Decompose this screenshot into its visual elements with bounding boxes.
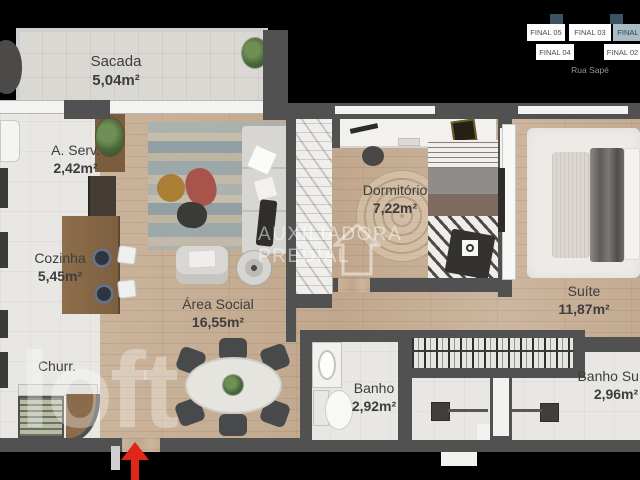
stool [94,284,114,304]
locator-unit-final04: FINAL 04 [536,44,574,60]
room-label-suite: Suíte 11,87m² [538,283,630,319]
sink-basin [318,350,336,380]
window-sill [108,100,266,114]
bed-knit-blanket [552,152,590,258]
wall-stub [332,112,340,148]
appliance [0,310,8,338]
bed-dark-duvet [590,148,624,262]
laundry-sink [0,120,20,162]
brand-watermark-line2: PREDIAL [258,246,350,268]
locator-unit-final05: FINAL 05 [527,24,565,41]
floor-plan-image: Sacada 5,04m² A. Serv. 2,42m² Cozinha 5,… [0,0,640,480]
room-label-sacada: Sacada 5,04m² [70,52,162,90]
double-bed [552,148,640,262]
wall [296,294,332,308]
fixture [0,352,8,388]
pouf-mustard [157,174,185,202]
bed-pillow-band [428,140,498,168]
locator-balcony-marker [550,14,563,24]
brand-watermark-line1: AUXILIADORA [258,224,402,246]
wall-suite-bottom [575,337,640,352]
table-centerpiece [223,375,243,395]
closet-hangers [412,338,575,368]
room-label-cozinha: Cozinha 5,45m² [6,250,114,286]
hallway-stub [441,452,477,466]
wall-pier [64,100,110,119]
locator-unit-final02: FINAL 02 [604,44,640,60]
chair [117,245,137,265]
kitchen-cabinet [88,176,116,220]
room-label-banho-suite: Banho Suíte 2,96m² [576,368,640,404]
wall-bottom [160,438,300,452]
bed-logo-mark [466,244,474,252]
wall-bottom [300,440,398,452]
bedroom-door-opening [338,278,370,292]
appliance [0,168,8,208]
wall-bath-left [300,342,312,442]
balcony-railing [16,28,268,32]
entrance-arrow-icon [121,442,149,460]
armchair-cushion [188,249,217,268]
bed-pillows [624,148,640,260]
shower-fixture [540,403,559,422]
locator-balcony-marker [610,14,623,24]
bedroom-window [335,106,435,114]
room-label-dormitorio: Dormitório 7,22m² [336,182,454,218]
dining-chair [219,414,247,436]
wall-closet-top [404,330,575,338]
shower-arm [448,409,488,412]
window-sill [0,100,66,114]
loft-logo: loft [20,336,176,444]
room-label-aserv: A. Serv. 2,42m² [28,142,123,178]
vase [362,146,384,166]
locator-unit-final01-highlighted: FINAL 01 [613,24,640,41]
wall-bath-top [300,330,404,342]
wall-bottom [398,440,640,452]
street-label: Rua Sapé [552,65,628,75]
chair [117,279,137,299]
suite-window [518,106,628,114]
suite-bath-door [493,378,509,436]
room-label-area-social: Área Social 16,55m² [160,296,276,332]
tv-panel [498,168,505,232]
room-label-banho: Banho 2,92m² [338,380,410,416]
desk-item [398,138,420,146]
entrance-arrow-stem [131,460,139,480]
locator-unit-final03: FINAL 03 [569,24,611,41]
